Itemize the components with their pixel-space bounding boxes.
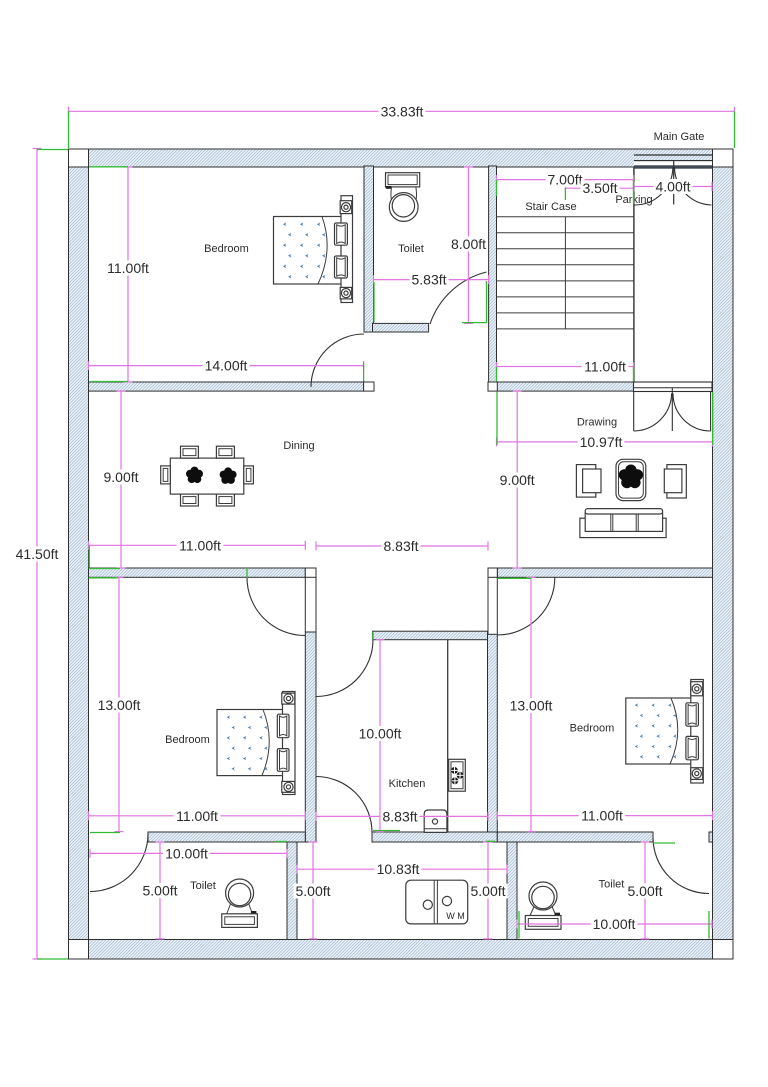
svg-text:11.00ft: 11.00ft [581, 808, 623, 824]
svg-text:5.00ft: 5.00ft [627, 883, 662, 899]
svg-text:Toilet: Toilet [398, 243, 424, 255]
svg-text:10.00ft: 10.00ft [359, 726, 402, 742]
svg-text:8.00ft: 8.00ft [451, 236, 486, 252]
svg-text:8.83ft: 8.83ft [382, 808, 417, 824]
svg-text:Bedroom: Bedroom [204, 243, 249, 255]
svg-text:8.83ft: 8.83ft [383, 538, 418, 554]
svg-text:7.00ft: 7.00ft [547, 172, 582, 188]
svg-text:13.00ft: 13.00ft [98, 697, 141, 713]
svg-text:11.00ft: 11.00ft [584, 359, 626, 375]
svg-text:Dining: Dining [283, 440, 314, 452]
svg-text:5.00ft: 5.00ft [470, 883, 505, 899]
svg-text:10.97ft: 10.97ft [580, 434, 623, 450]
svg-text:13.00ft: 13.00ft [510, 698, 553, 714]
svg-text:Toilet: Toilet [190, 880, 216, 892]
svg-text:Bedroom: Bedroom [165, 734, 210, 746]
svg-text:Toilet: Toilet [599, 879, 625, 891]
svg-text:Main Gate: Main Gate [654, 131, 705, 143]
svg-text:4.00ft: 4.00ft [655, 179, 690, 195]
svg-text:5.00ft: 5.00ft [295, 883, 330, 899]
svg-text:W M: W M [446, 911, 465, 921]
svg-text:9.00ft: 9.00ft [500, 472, 535, 488]
svg-text:10.00ft: 10.00ft [593, 916, 636, 932]
svg-text:Stair Case: Stair Case [525, 201, 576, 213]
svg-text:5.00ft: 5.00ft [142, 883, 177, 899]
svg-text:11.00ft: 11.00ft [179, 537, 221, 553]
svg-text:41.50ft: 41.50ft [16, 546, 59, 562]
svg-text:10.83ft: 10.83ft [377, 861, 420, 877]
svg-text:5.83ft: 5.83ft [411, 272, 446, 288]
svg-text:10.00ft: 10.00ft [165, 845, 208, 861]
svg-text:9.00ft: 9.00ft [103, 469, 138, 485]
svg-text:Kitchen: Kitchen [389, 778, 426, 790]
svg-text:Bedroom: Bedroom [570, 723, 615, 735]
svg-text:14.00ft: 14.00ft [205, 358, 248, 374]
svg-text:33.83ft: 33.83ft [381, 103, 424, 119]
svg-text:11.00ft: 11.00ft [176, 808, 218, 824]
svg-text:11.00ft: 11.00ft [107, 260, 149, 276]
svg-text:3.50ft: 3.50ft [582, 180, 617, 196]
svg-text:Drawing: Drawing [577, 417, 617, 429]
